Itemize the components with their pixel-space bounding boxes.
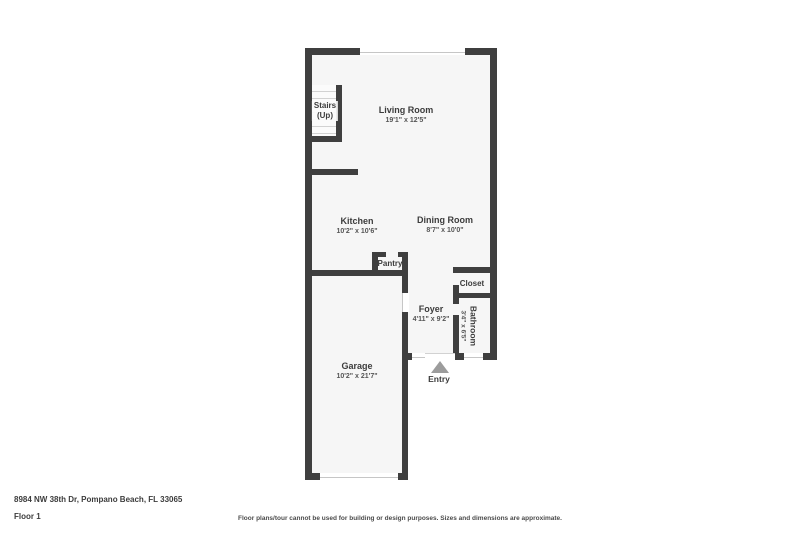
room-dims: 8'7" x 10'0" (417, 226, 473, 235)
wall-top-left (305, 48, 360, 55)
garage-bottom-stub-right (398, 473, 408, 480)
stairs-label-line1: Stairs (314, 101, 336, 111)
room-dims: 3'4" x 6'5" (459, 306, 468, 346)
room-dims: 10'2" x 21'7" (336, 372, 377, 381)
room-name: Garage (336, 360, 377, 372)
bottom-wall-stub-left (402, 353, 410, 360)
room-name: Dining Room (417, 214, 473, 226)
floor-plan-page: Stairs (Up) Pantry Closet Entry Living R… (0, 0, 800, 533)
room-label-bathroom: Bathroom 3'4" x 6'5" (459, 306, 480, 346)
garage-right-wall (402, 312, 408, 480)
room-name: Kitchen (336, 215, 377, 227)
room-dims: 10'2" x 10'6" (336, 227, 377, 236)
room-name: Foyer (413, 303, 450, 315)
room-label-foyer: Foyer 4'11" x 9'2" (413, 303, 450, 324)
entry-door-opening (425, 353, 455, 361)
garage-bottom-stub-left (305, 473, 320, 480)
stairs-label: Stairs (Up) (312, 101, 338, 121)
wall-right (490, 48, 497, 360)
bottom-wall-right (483, 353, 497, 360)
foyer-left-wall-upper (402, 276, 408, 293)
living-room-window (360, 48, 465, 55)
entry-label: Entry (428, 374, 450, 384)
closet-label: Closet (460, 279, 484, 289)
bathroom-left-wall-upper (453, 298, 459, 304)
floor-label: Floor 1 (14, 512, 41, 521)
closet-top-wall (453, 267, 497, 273)
room-dims: 19'1" x 12'5" (379, 116, 434, 125)
property-address: 8984 NW 38th Dr, Pompano Beach, FL 33065 (14, 495, 182, 504)
room-dims: 4'11" x 9'2" (413, 315, 450, 324)
room-name: Living Room (379, 104, 434, 116)
bottom-wall-stub-mid (455, 353, 462, 360)
entry-arrow-icon (431, 361, 449, 373)
room-label-kitchen: Kitchen 10'2" x 10'6" (336, 215, 377, 236)
room-name: Bathroom (468, 306, 480, 346)
pantry-label: Pantry (378, 259, 403, 269)
room-label-dining-room: Dining Room 8'7" x 10'0" (417, 214, 473, 235)
stairs-bottom-wall (312, 136, 342, 142)
disclaimer-text: Floor plans/tour cannot be used for buil… (238, 515, 562, 522)
garage-foyer-door (402, 293, 409, 312)
stairs-label-line2: (Up) (314, 111, 336, 121)
wall-garage-top (312, 270, 408, 276)
wall-kitchen-divider (312, 169, 358, 175)
room-label-garage: Garage 10'2" x 21'7" (336, 360, 377, 381)
garage-door (320, 473, 398, 480)
pantry-right-wall (402, 252, 408, 270)
room-label-living-room: Living Room 19'1" x 12'5" (379, 104, 434, 125)
